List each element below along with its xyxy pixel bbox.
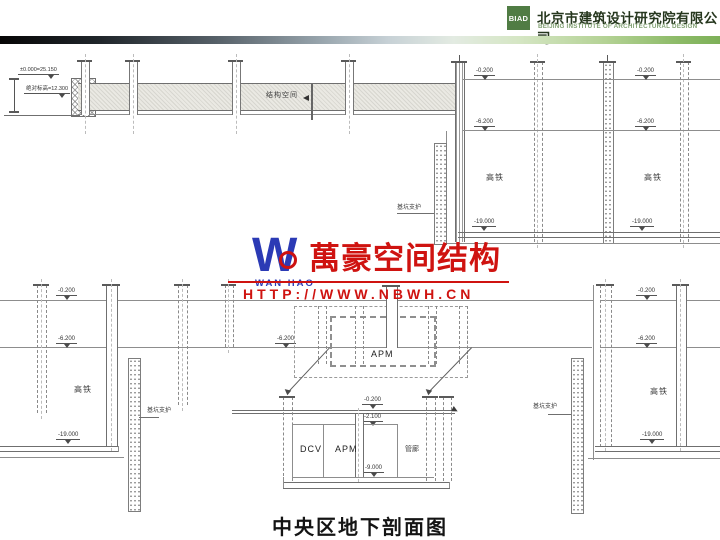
- elevation-label: -0.200: [636, 288, 657, 300]
- base-slab-line: [0, 451, 118, 452]
- wall: [603, 62, 614, 244]
- floor-line: [600, 347, 720, 348]
- column-centerline: [349, 54, 350, 134]
- dimension-tick: [9, 78, 19, 80]
- column-centerline: [683, 54, 684, 248]
- elevation-value: -0.200: [635, 68, 656, 76]
- column-dashed: [428, 306, 437, 364]
- elevation-marker-icon: [370, 405, 376, 409]
- dimension-tick: [9, 111, 19, 113]
- elevation-value: -6.200: [275, 336, 296, 344]
- base-slab-line: [283, 488, 450, 489]
- pit-support-label: 基坑支护: [533, 404, 557, 410]
- elevation-label: -6.200: [474, 119, 495, 131]
- slab-edge: [283, 477, 284, 488]
- base-slab-line: [458, 232, 720, 233]
- hsr-label: 高铁: [644, 174, 662, 182]
- column-stub: [607, 55, 608, 62]
- wanhao-logo-ring-icon: [279, 251, 297, 269]
- elevation-marker-icon: [649, 440, 655, 444]
- floor-line: [463, 79, 720, 80]
- elevation-label: -19.000: [56, 432, 80, 444]
- column-dashed: [178, 285, 188, 405]
- elevation-label: -0.200: [56, 288, 77, 300]
- column-centerline: [680, 279, 681, 451]
- column-stub: [459, 55, 460, 62]
- watermark-brand: 萬豪空间结构: [309, 242, 501, 276]
- datum-label: ±0.000=25.150: [18, 67, 59, 79]
- elevation-marker-icon: [482, 127, 488, 131]
- elevation-value: -19.000: [640, 432, 664, 440]
- elevation-label: -6.200: [275, 336, 296, 348]
- base-slab-line: [588, 458, 720, 459]
- slab-line: [232, 410, 455, 411]
- column-dashed: [680, 62, 689, 242]
- floor-line: [600, 300, 720, 301]
- leader-arrow-icon: [303, 95, 309, 101]
- elevation-marker-icon: [59, 94, 65, 98]
- slab-line: [232, 413, 455, 414]
- column-centerline: [182, 279, 183, 411]
- elevation-value: -0.200: [636, 288, 657, 296]
- elevation-label: -19.000: [630, 219, 654, 231]
- column-centerline: [358, 408, 359, 482]
- base-slab-line: [458, 237, 720, 238]
- column-centerline: [605, 279, 606, 451]
- elevation-label: -0.200: [635, 68, 656, 80]
- dcv-label: DCV: [300, 445, 322, 454]
- watermark-url: HTTP://WWW.NBWH.CN: [243, 286, 474, 302]
- elevation-marker-icon: [643, 76, 649, 80]
- wall-dashed: [426, 397, 436, 481]
- column-cap: [439, 396, 454, 398]
- wall: [676, 285, 687, 447]
- slab-edge: [449, 482, 450, 488]
- wall: [106, 285, 118, 447]
- leader-line: [397, 213, 434, 214]
- datum-value: 绝对标高=12.300: [24, 86, 70, 94]
- hanger-line: [311, 84, 313, 120]
- column-dashed: [37, 285, 47, 413]
- floor-line: [463, 130, 720, 131]
- elevation-marker-icon: [639, 227, 645, 231]
- elevation-marker-icon: [64, 296, 70, 300]
- column-dashed: [225, 285, 234, 347]
- room-floor-line: [292, 477, 434, 478]
- elevation-marker-icon: [64, 344, 70, 348]
- pit-support-label: 基坑支护: [397, 205, 421, 211]
- column-centerline: [228, 279, 229, 353]
- biad-logo-text: BIAD: [509, 14, 529, 23]
- base-slab-line: [595, 451, 720, 452]
- column-centerline: [133, 54, 134, 134]
- base-slab-line: [0, 457, 124, 458]
- column-centerline: [85, 54, 86, 134]
- room-wall: [397, 424, 398, 477]
- company-name-en: BEIJING INSTITUTE OF ARCHITECTURAL DESIG…: [538, 23, 697, 30]
- column-cap: [422, 396, 438, 398]
- pipe-gallery-label: 管廊: [405, 446, 419, 453]
- biad-logo: BIAD: [507, 6, 530, 30]
- header-divider-bar: [0, 36, 720, 44]
- pit-support-label: 基坑支护: [147, 408, 171, 414]
- column-dashed: [355, 306, 364, 364]
- base-slab-line: [0, 446, 118, 447]
- hsr-label: 高铁: [486, 174, 504, 182]
- elevation-marker-icon: [481, 227, 487, 231]
- wall-dashed: [443, 397, 452, 481]
- elevation-value: -0.200: [362, 397, 383, 405]
- elevation-marker-icon: [48, 75, 54, 79]
- elevation-label: -19.000: [472, 219, 496, 231]
- elevation-value: -9.000: [363, 465, 384, 473]
- ground-line: [4, 115, 80, 116]
- base-slab-line: [595, 446, 720, 447]
- wall: [455, 62, 465, 242]
- elevation-value: -6.200: [636, 336, 657, 344]
- elevation-label: -6.200: [635, 119, 656, 131]
- elevation-value: -6.200: [474, 119, 495, 127]
- room-partition: [323, 424, 324, 477]
- elevation-value: -19.000: [630, 219, 654, 227]
- apm-label: APM: [371, 350, 394, 359]
- column-cap: [279, 396, 295, 398]
- column-centerline: [111, 279, 112, 451]
- column-centerline: [41, 279, 42, 419]
- datum-label: 绝对标高=12.300: [24, 86, 70, 98]
- elevation-value: -19.000: [56, 432, 80, 440]
- pit-edge-line: [593, 285, 594, 460]
- elevation-label: -0.200: [474, 68, 495, 80]
- elevation-marker-icon: [482, 76, 488, 80]
- elevation-marker-icon: [65, 440, 71, 444]
- elevation-marker-icon: [644, 296, 650, 300]
- column-dashed: [534, 62, 543, 242]
- dimension-line: [14, 79, 15, 112]
- column-centerline: [537, 54, 538, 248]
- elevation-label: -6.200: [56, 336, 77, 348]
- slab-edge: [118, 446, 119, 452]
- hsr-label: 高铁: [650, 388, 668, 396]
- column-centerline: [236, 54, 237, 134]
- hsr-label: 高铁: [74, 386, 92, 394]
- room-line: [292, 424, 398, 425]
- apm-label: APM: [335, 445, 358, 454]
- elevation-label: -6.200: [636, 336, 657, 348]
- pile-wall: [571, 358, 584, 514]
- leader-line: [139, 417, 159, 418]
- pile-wall: [434, 143, 447, 245]
- elevation-value: -2.100: [362, 414, 383, 422]
- elevation-label: -9.000: [363, 465, 384, 477]
- elevation-value: -0.200: [56, 288, 77, 296]
- elevation-marker-icon: [643, 127, 649, 131]
- leader-line: [548, 414, 571, 415]
- slide: BIAD 北京市建筑设计研究院有限公司 BEIJING INSTITUTE OF…: [0, 0, 720, 540]
- base-slab-line: [283, 482, 450, 483]
- datum-value: ±0.000=25.150: [18, 67, 59, 75]
- elevation-label: -0.200: [362, 397, 383, 409]
- future-structure-outline: [330, 316, 436, 367]
- column-dashed: [600, 285, 612, 447]
- elevation-value: -6.200: [635, 119, 656, 127]
- elevation-value: -6.200: [56, 336, 77, 344]
- elevation-marker-icon: [644, 344, 650, 348]
- pile-wall: [128, 358, 141, 512]
- watermark-underline: [228, 281, 509, 283]
- structural-space-label: 结构空间: [266, 92, 298, 99]
- elevation-label: -19.000: [640, 432, 664, 444]
- page-title: 中央区地下剖面图: [0, 511, 720, 540]
- elevation-value: -19.000: [472, 219, 496, 227]
- elevation-value: -0.200: [474, 68, 495, 76]
- room-wall: [292, 424, 293, 477]
- elevation-marker-icon: [283, 344, 289, 348]
